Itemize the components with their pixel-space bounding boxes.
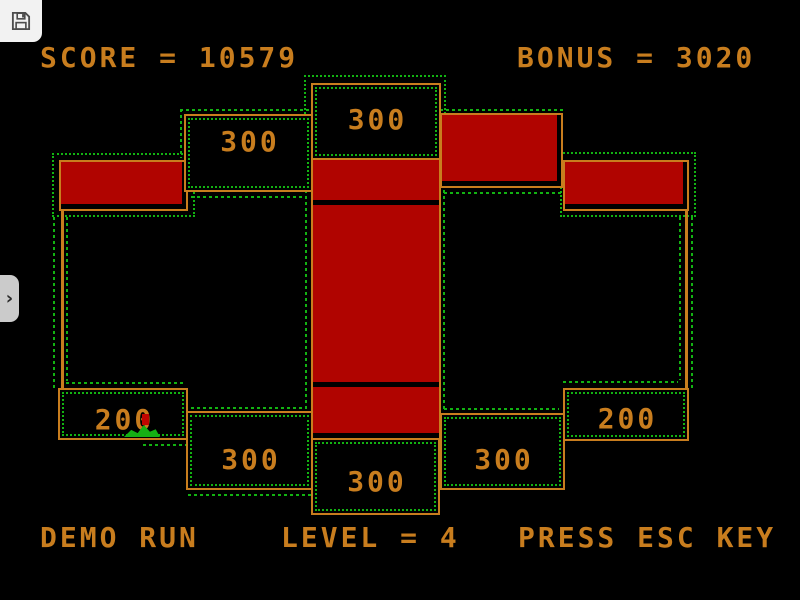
- chevron-right-icon: ›: [6, 288, 13, 309]
- value-label: 300: [313, 106, 439, 134]
- trail-dotted-line: [443, 166, 445, 409]
- trail-dotted-line: [691, 217, 693, 388]
- value-label: 300: [188, 446, 311, 474]
- value-box-bottom-left-200: 200: [58, 388, 188, 440]
- value-label: 300: [186, 128, 311, 156]
- value-label: 300: [313, 468, 438, 496]
- trail-dotted-line: [305, 166, 307, 411]
- wall-line-right: [685, 211, 688, 388]
- trail-dotted-line: [444, 192, 561, 194]
- red-block-left: [59, 160, 188, 211]
- trail-dotted-line: [180, 109, 182, 158]
- bonus-text: BONUS = 3020: [517, 44, 755, 72]
- trail-dotted-line: [143, 444, 189, 446]
- trail-dotted-line: [191, 407, 303, 409]
- trail-dotted-line: [66, 382, 184, 384]
- trail-dotted-line: [53, 217, 55, 388]
- red-column-segment-top: [313, 160, 439, 205]
- player-creature-marker: [142, 414, 149, 425]
- value-box-upper-left: 300: [184, 114, 313, 192]
- value-box-bottom-left-300: 300: [186, 411, 313, 490]
- trail-dotted-line: [444, 408, 559, 410]
- wall-line-left: [61, 211, 64, 388]
- value-label: 300: [442, 446, 563, 474]
- red-column-segment-middle: [313, 205, 439, 387]
- red-block-top-right-center: [440, 113, 563, 188]
- trail-dotted-line: [66, 217, 68, 381]
- demo-run-text: DEMO RUN: [40, 524, 199, 552]
- trail-dotted-line: [679, 217, 681, 380]
- game-screen[interactable]: SCORE = 10579 BONUS = 3020 300 300 2: [0, 0, 800, 600]
- level-text: LEVEL = 4: [281, 524, 460, 552]
- value-box-bottom-right-200: 200: [563, 388, 689, 441]
- value-label: 200: [565, 405, 687, 433]
- trail-dotted-line: [563, 381, 678, 383]
- trail-dotted-line: [180, 109, 311, 111]
- value-label: 200: [60, 406, 186, 434]
- sidebar-toggle[interactable]: ›: [0, 275, 19, 322]
- save-button[interactable]: [0, 0, 42, 42]
- trail-dotted-line: [440, 109, 563, 111]
- value-box-bottom-right-300: 300: [440, 413, 565, 490]
- trail-dotted-line: [191, 196, 303, 198]
- press-esc-text: PRESS ESC KEY: [518, 524, 776, 552]
- score-text: SCORE = 10579: [40, 44, 298, 72]
- floppy-disk-icon: [8, 8, 34, 34]
- value-box-top-center: 300: [311, 83, 441, 160]
- value-box-bottom-center: 300: [311, 438, 440, 515]
- trail-dotted-line: [188, 494, 311, 496]
- red-block-right: [563, 160, 689, 211]
- red-column-segment-bottom: [313, 387, 439, 438]
- red-column: [311, 160, 441, 438]
